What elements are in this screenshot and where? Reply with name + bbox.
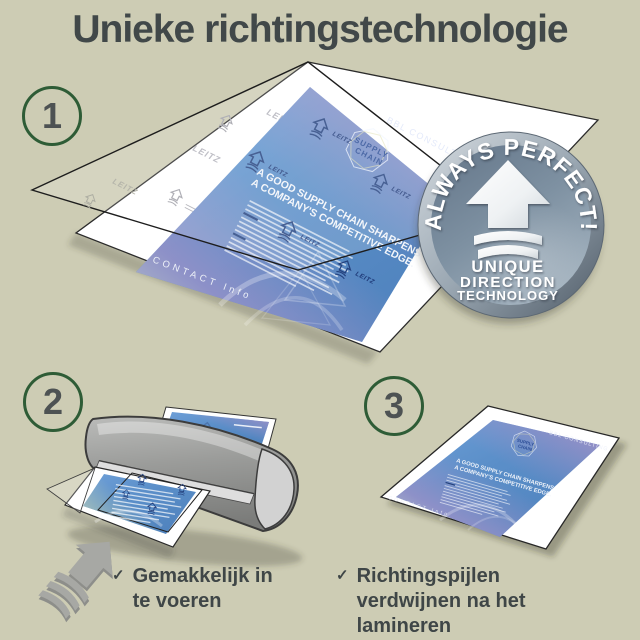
step-1-number: 1	[42, 95, 62, 137]
infographic: LEITZ LEITZ LEITZ	[0, 0, 640, 640]
checklist-text: Gemakkelijk in te voeren	[133, 564, 277, 614]
checklist-item-easy-feed: ✓ Gemakkelijk in te voeren	[112, 564, 277, 614]
step-3-circle: 3	[364, 376, 424, 436]
page-title: Unieke richtingstechnologie	[0, 8, 640, 52]
svg-text:TECHNOLOGY: TECHNOLOGY	[457, 288, 559, 303]
checkmark-icon: ✓	[336, 567, 349, 586]
checkmark-icon: ✓	[112, 567, 125, 586]
always-perfect-badge: ALWAYS PERFECT! UNIQUE DIRECTION TECHNOL…	[417, 132, 604, 324]
checklist-item-arrows-disappear: ✓ Richtingspijlen verdwijnen na het lami…	[336, 564, 606, 639]
step-2-circle: 2	[23, 372, 83, 432]
step-3-number: 3	[384, 385, 404, 427]
illustration-canvas: LEITZ LEITZ LEITZ	[0, 0, 640, 640]
step3-laminated-document: BBL CONSULTING SUPPLY CHAIN A GOOD SUPPL…	[381, 406, 627, 557]
checklist-text: Richtingspijlen verdwijnen na het lamine…	[357, 564, 606, 639]
step-2-number: 2	[43, 381, 63, 423]
badge-caption: UNIQUE DIRECTION TECHNOLOGY	[457, 258, 559, 303]
step-1-circle: 1	[22, 86, 82, 146]
